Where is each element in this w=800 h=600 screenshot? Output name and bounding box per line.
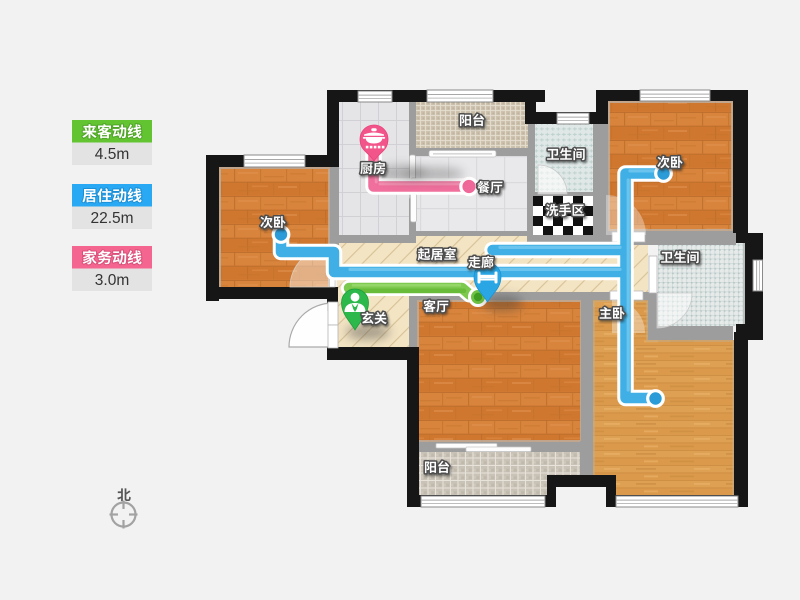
svg-text:3.0m: 3.0m [95,272,129,289]
svg-text:4.5m: 4.5m [95,146,129,163]
svg-text:22.5m: 22.5m [90,210,133,227]
